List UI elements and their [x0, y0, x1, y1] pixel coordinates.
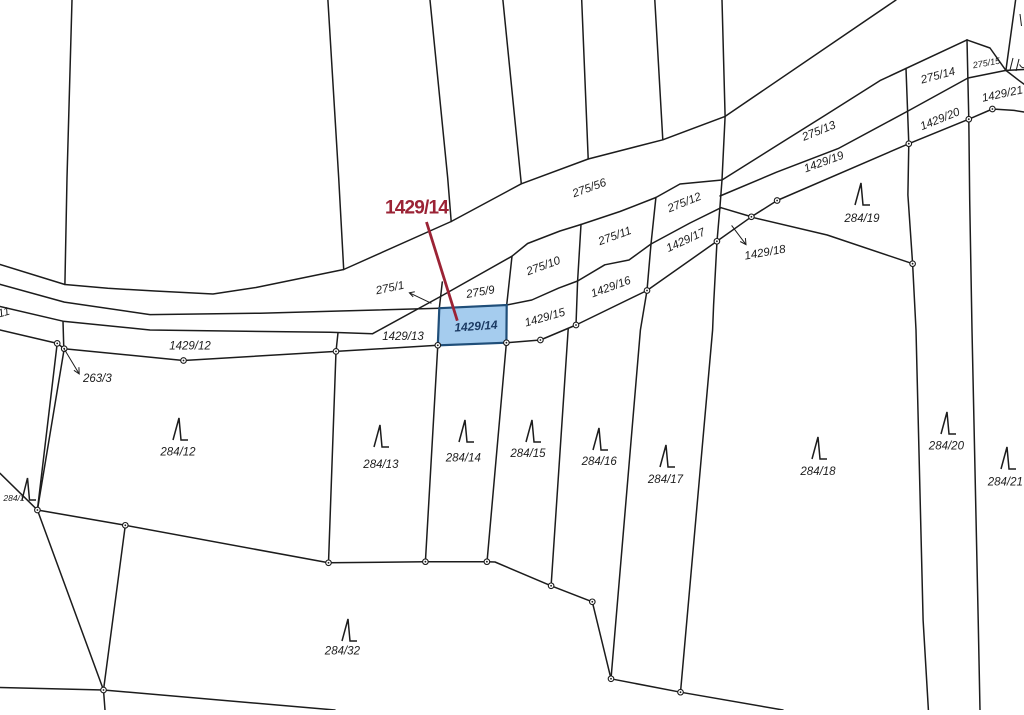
svg-text:284/18: 284/18	[799, 466, 836, 478]
svg-text:1429/13: 1429/13	[382, 331, 424, 343]
svg-text:284/16: 284/16	[581, 456, 618, 468]
svg-text:1429/14: 1429/14	[385, 198, 449, 219]
svg-text:284/20: 284/20	[928, 441, 965, 453]
svg-text:284/32: 284/32	[324, 646, 361, 658]
svg-text:284/17: 284/17	[647, 474, 684, 486]
svg-text:284/21: 284/21	[987, 477, 1023, 489]
svg-text:284/19: 284/19	[843, 213, 880, 225]
svg-text:263/3: 263/3	[82, 373, 112, 385]
svg-text:1429/12: 1429/12	[169, 341, 211, 353]
svg-text:284/12: 284/12	[159, 447, 196, 459]
svg-text:284/14: 284/14	[445, 453, 481, 465]
svg-text:284/13: 284/13	[362, 459, 399, 471]
svg-text:284/15: 284/15	[509, 448, 546, 460]
svg-text:284/1: 284/1	[2, 493, 25, 503]
